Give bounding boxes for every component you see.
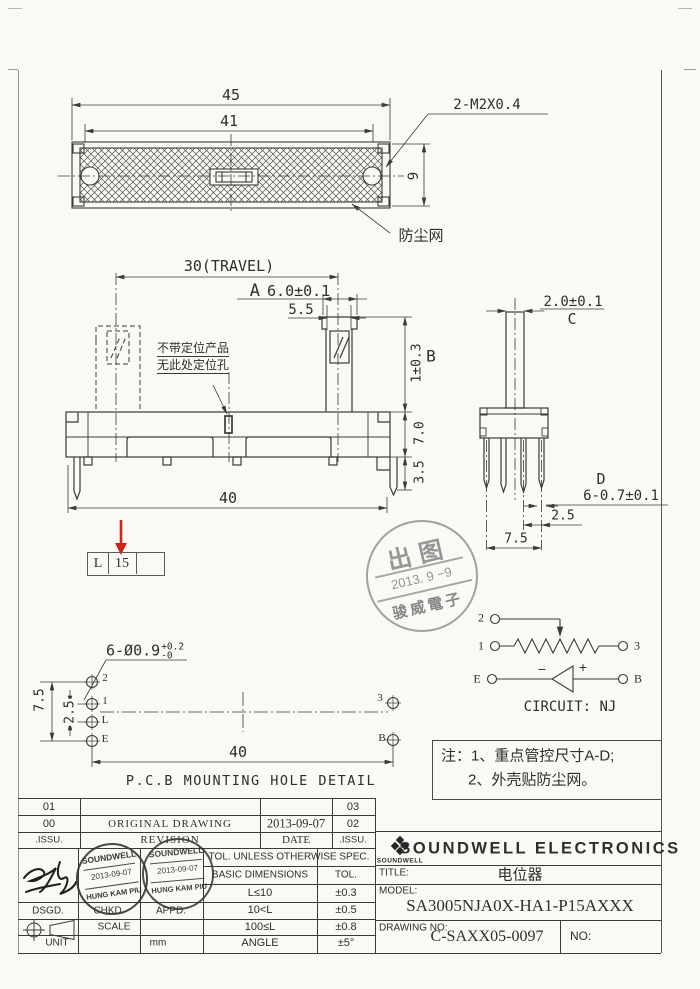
pcb-detail-drawing	[30, 640, 460, 795]
travel-code-divider	[136, 552, 137, 574]
tol-col-tol: TOL.	[335, 870, 357, 881]
dim-7-5-side: 7.5	[501, 532, 530, 547]
tol-col-basic: BASIC DIMENSIONS	[212, 870, 308, 881]
travel-code-letter: L	[94, 556, 103, 572]
positioning-note-line2: 无此处定位孔	[157, 356, 229, 374]
dim-a-value: 6.0±0.1	[267, 282, 330, 300]
reg-mark	[8, 8, 22, 9]
hole-label-b: B	[378, 732, 385, 744]
dim-c-value: 2.0±0.1	[543, 294, 602, 310]
dim-b-value: 1±0.3	[410, 341, 425, 384]
dim-41: 41	[220, 112, 238, 130]
title-value: 电位器	[497, 864, 542, 885]
stamp-name: HUNG KAM PIU	[145, 881, 214, 896]
dust-net-label: 防尘网	[398, 225, 443, 246]
dim-b-label: B	[426, 347, 436, 366]
hole-label-3: 3	[377, 692, 383, 704]
frame-bottom	[18, 953, 661, 954]
hole-label-2: 2	[102, 672, 108, 684]
grid-line	[332, 798, 333, 848]
dim-d-value: 6-0.7±0.1	[583, 488, 659, 504]
dsgd-label: DSGD.	[32, 906, 64, 917]
scale-label: SCALE	[98, 922, 131, 933]
model-value: SA3005NJA0X-HA1-P15AXXX	[406, 896, 634, 916]
dim-7-5-pcb: 7.5	[33, 686, 48, 713]
hole-callout-value: 6-Ø0.9	[106, 642, 160, 660]
grid-line	[375, 831, 661, 832]
dim-7-0: 7.0	[413, 419, 428, 446]
terminal-1: 1	[478, 639, 484, 654]
rev-row1-issue2: 03	[347, 801, 359, 813]
terminal-e: E	[473, 672, 480, 687]
model-label: MODEL:	[379, 886, 417, 897]
dim-9: 9	[406, 170, 422, 182]
tol-range-3: 100≤L	[245, 921, 276, 933]
front-view-drawing	[20, 258, 460, 520]
led-plus: +	[579, 659, 587, 675]
tol-value-2: ±0.5	[335, 904, 356, 916]
rev-row1-issue: 01	[43, 801, 55, 813]
dim-2-5-side: 2.5	[551, 509, 574, 524]
grid-line	[375, 920, 661, 921]
note-2: 2、外壳贴防尘网。	[468, 769, 596, 790]
circuit-caption: CIRCUIT: NJ	[524, 699, 617, 715]
top-view-drawing	[20, 85, 460, 255]
terminal-2: 2	[478, 611, 484, 626]
dim-40-pcb: 40	[229, 743, 247, 761]
screw-callout: 2-M2X0.4	[453, 97, 520, 113]
rev-date-value: 2013-09-07	[267, 817, 325, 832]
tol-header: TOL. UNLESS OTHERWISE SPEC.	[209, 852, 370, 863]
tol-value-3: ±0.8	[335, 921, 356, 933]
grid-line	[317, 848, 318, 953]
dim-c-label: C	[567, 310, 576, 328]
frame-left	[18, 70, 19, 953]
dim-2-5-pcb: 2.5	[63, 698, 78, 725]
pcb-caption: P.C.B MOUNTING HOLE DETAIL	[126, 773, 376, 789]
rev-description: ORIGINAL DRAWING	[108, 818, 232, 830]
grid-line	[375, 798, 376, 953]
hole-callout-tol-lower: -0	[161, 651, 184, 660]
title-label: TITLE:	[379, 868, 409, 879]
note-1: 注：1、重点管控尺寸A-D;	[441, 745, 614, 766]
positioning-note-line1: 不带定位产品	[157, 339, 229, 357]
designer-signature	[16, 848, 82, 906]
hole-label-1: 1	[102, 695, 108, 707]
tol-range-1: L≤10	[248, 887, 272, 899]
hole-callout: 6-Ø0.9 +0.2 -0	[106, 642, 184, 661]
terminal-3: 3	[634, 639, 640, 654]
travel-code-value: 15	[115, 556, 129, 572]
rev-row2-issue: 00	[43, 818, 55, 830]
hole-label-l: L	[102, 714, 109, 726]
logo-text: SOUNDWELL	[377, 858, 423, 865]
drawing-sheet: L 15 出图 2013. 9 −9 骏威電子 45 41 2-M2X0.4 9…	[0, 0, 700, 989]
dim-a-label: A	[250, 281, 260, 301]
dim-40-front: 40	[219, 489, 237, 507]
hole-label-e: E	[102, 733, 109, 745]
unit-value: mm	[150, 938, 167, 949]
led-minus: −	[538, 661, 546, 677]
reg-mark	[678, 8, 692, 9]
dim-d-label: D	[596, 470, 605, 488]
dim-45: 45	[222, 86, 240, 104]
rev-issue-header: .ISSU.	[35, 835, 62, 846]
grid-line	[18, 832, 375, 833]
stamp-company: SOUNDWELL	[75, 848, 144, 867]
rev-issue-header2: .ISSU.	[339, 835, 366, 846]
reg-mark	[8, 69, 18, 70]
stamp-date: 2013-09-07	[143, 862, 212, 877]
projection-symbol-icon	[22, 917, 78, 943]
tol-value-1: ±0.3	[335, 887, 356, 899]
company-name: SOUNDWELL ELECTRONICS	[399, 840, 680, 859]
dim-5-5: 5.5	[288, 302, 313, 318]
drawing-no-value: C-SAXX05-0097	[431, 928, 544, 946]
rev-date-header: DATE	[282, 834, 310, 846]
reg-mark	[684, 69, 696, 70]
tol-range-4: ANGLE	[241, 937, 278, 949]
release-stamp-company: 骏威電子	[390, 587, 465, 624]
no-label: NO:	[570, 929, 591, 943]
stamp-name: HUNG KAM PIU	[80, 884, 149, 902]
led-text: LED	[557, 676, 571, 683]
rev-row2-issue2: 02	[347, 818, 359, 830]
grid-line	[80, 798, 81, 848]
grid-line	[203, 884, 375, 885]
grid-line	[18, 798, 375, 799]
grid-line	[560, 920, 561, 953]
tol-value-4: ±5°	[338, 937, 355, 949]
travel-code-divider	[108, 552, 109, 574]
dim-travel: 30(TRAVEL)	[184, 257, 274, 275]
terminal-b: B	[634, 672, 642, 687]
dim-3-5: 3.5	[413, 458, 428, 485]
dim-a: A6.0±0.1	[250, 281, 330, 301]
tol-range-2: 10<L	[248, 904, 273, 916]
grid-line	[203, 866, 375, 867]
stamp-company: SOUNDWELL	[142, 844, 211, 860]
grid-line	[260, 798, 261, 848]
